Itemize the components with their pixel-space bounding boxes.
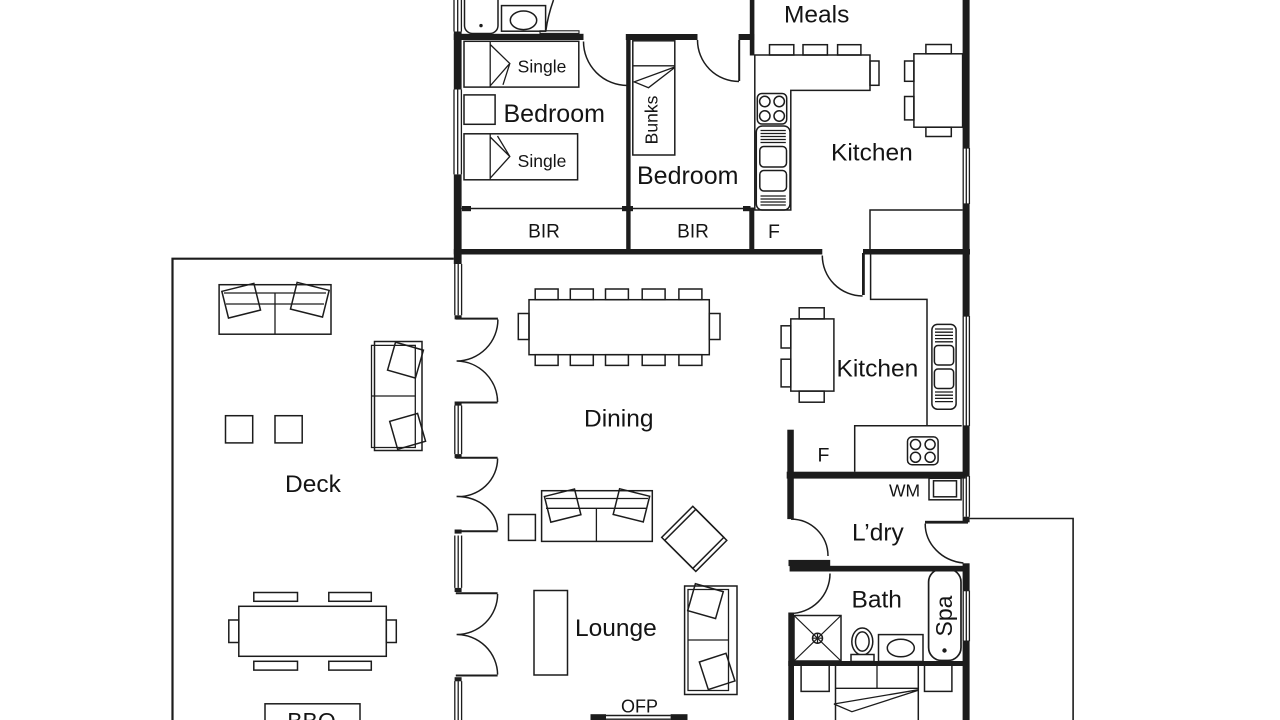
svg-text:Lounge: Lounge <box>575 615 657 642</box>
svg-text:Bedroom: Bedroom <box>637 162 738 190</box>
svg-text:L’dry: L’dry <box>852 520 905 547</box>
svg-text:Single: Single <box>518 57 567 77</box>
svg-text:Single: Single <box>518 151 567 171</box>
svg-text:BIR: BIR <box>528 222 560 243</box>
svg-text:F: F <box>818 445 830 467</box>
svg-text:OFP: OFP <box>621 697 658 717</box>
svg-text:Bunks: Bunks <box>642 95 662 144</box>
svg-text:Deck: Deck <box>285 471 342 498</box>
svg-text:Meals: Meals <box>784 2 849 29</box>
svg-text:BBQ: BBQ <box>287 708 336 720</box>
svg-text:Bedroom: Bedroom <box>504 100 605 128</box>
svg-text:BIR: BIR <box>677 222 709 243</box>
svg-text:WM: WM <box>889 481 920 501</box>
svg-text:F: F <box>768 221 780 243</box>
svg-text:Dining: Dining <box>584 406 653 433</box>
svg-text:Kitchen: Kitchen <box>831 140 913 167</box>
svg-text:Kitchen: Kitchen <box>837 356 919 383</box>
svg-text:Spa: Spa <box>931 595 957 636</box>
svg-text:Bath: Bath <box>852 587 902 614</box>
